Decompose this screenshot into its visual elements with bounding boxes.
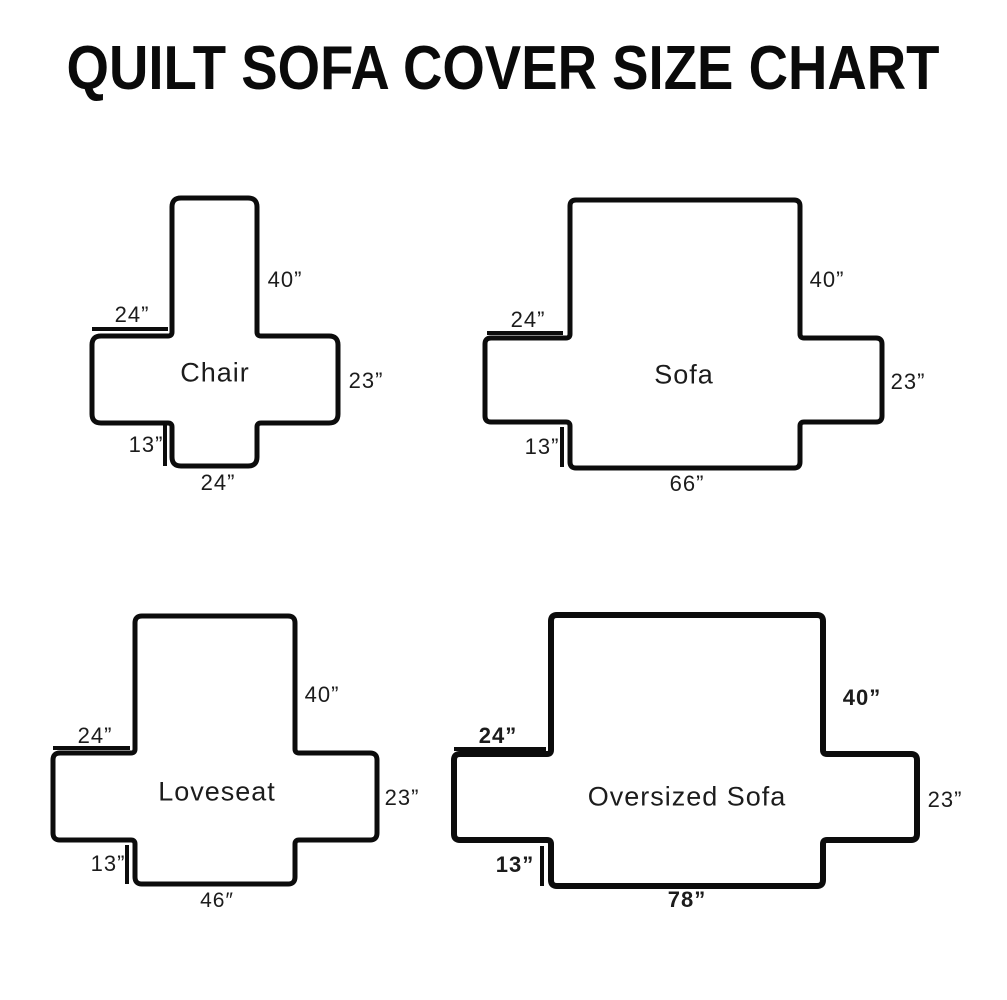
chair-arm-width-label: 24” xyxy=(115,302,150,328)
loveseat-name-label: Loveseat xyxy=(158,777,276,808)
chair-back-height-label: 40” xyxy=(268,267,303,293)
loveseat-back-height-label: 40” xyxy=(305,682,340,708)
sofa-seat-width-label: 66” xyxy=(670,471,705,497)
oversized-sofa-name-label: Oversized Sofa xyxy=(588,782,787,813)
loveseat-seat-side-height-label: 23” xyxy=(385,785,420,811)
loveseat-skirt-height-label: 13” xyxy=(91,851,126,877)
sofa-arm-width-label: 24” xyxy=(511,307,546,333)
oversized-sofa-back-height-label: 40” xyxy=(843,685,881,711)
sofa-skirt-height-label: 13” xyxy=(525,434,560,460)
sofa-seat-side-height-label: 23” xyxy=(891,369,926,395)
chair-seat-side-height-label: 23” xyxy=(349,368,384,394)
cover-labels-layer: Chair40”24”23”13”24”Sofa40”24”23”13”66”L… xyxy=(0,0,1007,1000)
sofa-back-height-label: 40” xyxy=(810,267,845,293)
chair-skirt-height-label: 13” xyxy=(129,432,164,458)
oversized-sofa-arm-width-label: 24” xyxy=(479,723,517,749)
oversized-sofa-seat-side-height-label: 23” xyxy=(928,787,963,813)
chair-name-label: Chair xyxy=(180,358,250,389)
loveseat-arm-width-label: 24” xyxy=(78,723,113,749)
chair-seat-width-label: 24” xyxy=(201,470,236,496)
sofa-name-label: Sofa xyxy=(654,360,714,391)
oversized-sofa-seat-width-label: 78” xyxy=(668,887,706,913)
quilt-sofa-cover-size-chart: QUILT SOFA COVER SIZE CHART Chair40”24”2… xyxy=(0,0,1007,1000)
oversized-sofa-skirt-height-label: 13” xyxy=(496,852,534,878)
loveseat-seat-width-label: 46″ xyxy=(200,889,234,913)
